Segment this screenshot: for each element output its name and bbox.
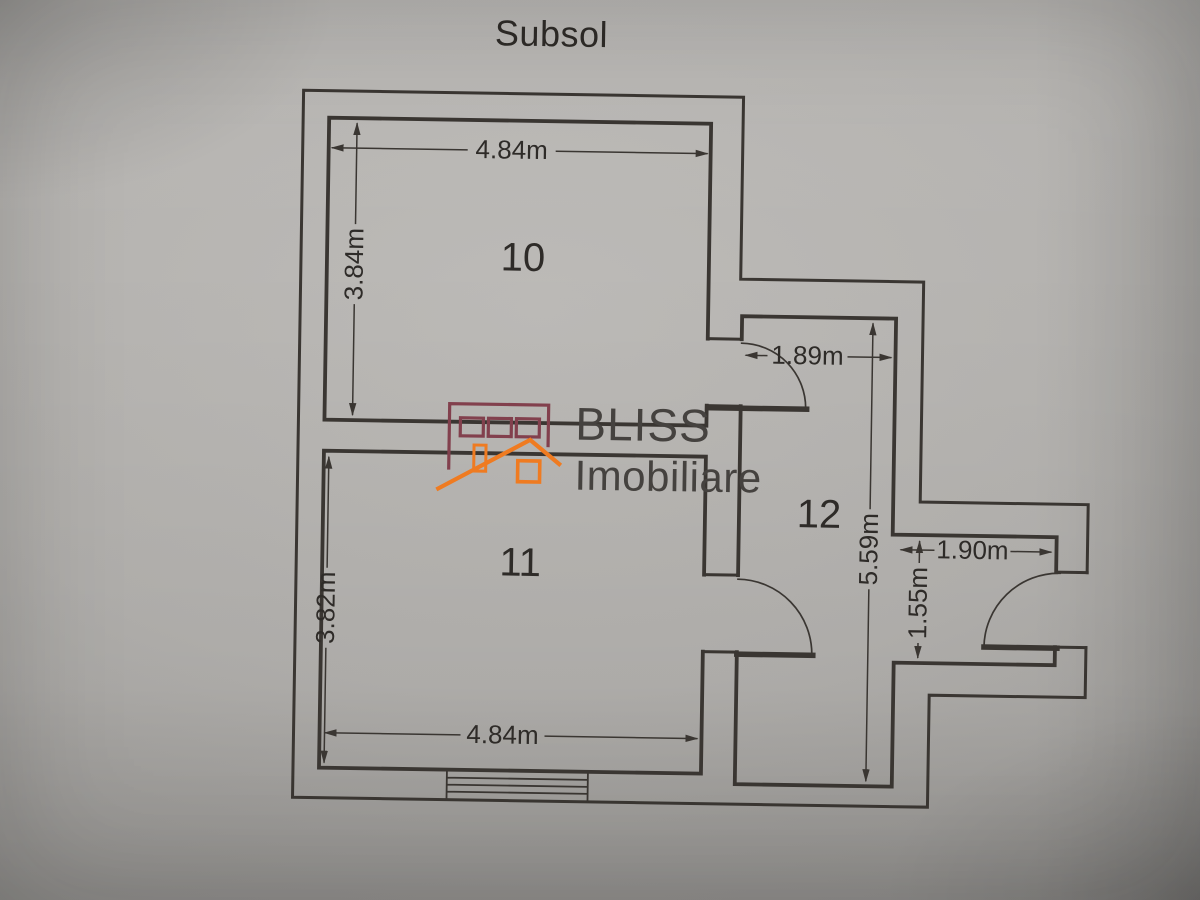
basement-window <box>446 770 587 802</box>
floorplan-drawing: Subsol 10 11 12 4.84m 3.84m 1.89m 5.59m … <box>0 0 1200 900</box>
dim-room11-width: 4.84m <box>466 719 539 750</box>
dim-hall-height: 5.59m <box>853 513 884 586</box>
dim-alcove-width: 1.90m <box>936 534 1009 565</box>
logo-text-group: BLISS Imobiliare <box>574 398 763 502</box>
dim-line-room10-height-bottom <box>353 304 355 415</box>
door-leaf-room11 <box>737 654 813 655</box>
dim-line-room10-width-left <box>332 148 468 150</box>
hallway-inner-wall <box>735 316 1060 789</box>
door-leaf-room10 <box>708 408 807 410</box>
door-arc-room11 <box>737 579 813 655</box>
dim-line-room11-width-left <box>325 733 461 735</box>
room-label-10: 10 <box>500 235 545 280</box>
dim-room10-width: 4.84m <box>475 134 548 165</box>
door-arc-entrance <box>984 572 1060 648</box>
dim-line-room10-width-right <box>556 151 708 153</box>
logo-tagline-text: Imobiliare <box>574 452 762 502</box>
dim-line-room10-height-top <box>356 123 358 224</box>
dim-line-hall-height-top <box>870 323 873 509</box>
watermark-logo: BLISS Imobiliare <box>436 395 763 501</box>
logo-brand-text: BLISS <box>575 398 711 452</box>
dim-line-room11-height-bottom <box>324 648 326 763</box>
logo-roof-group <box>436 438 561 491</box>
dim-room10-height: 3.84m <box>338 228 369 301</box>
dim-line-hall-top-right <box>847 357 891 358</box>
dim-alcove-height: 1.55m <box>902 567 933 640</box>
dim-line-room11-width-right <box>544 736 697 738</box>
dim-line-alcove-width-right <box>1010 551 1051 552</box>
scanned-floorplan-photo: Subsol 10 11 12 4.84m 3.84m 1.89m 5.59m … <box>0 0 1200 900</box>
room-label-11: 11 <box>499 540 541 585</box>
plan-title: Subsol <box>495 12 609 55</box>
dim-line-hall-height-bottom <box>866 589 869 781</box>
logo-door-icon <box>517 461 539 482</box>
dim-line-room11-height-top <box>327 457 329 568</box>
door-leaf-entrance <box>984 647 1057 648</box>
dim-line-alcove-width-left <box>900 550 934 551</box>
room-label-12: 12 <box>796 492 841 537</box>
dim-room11-height: 3.82m <box>310 571 341 644</box>
dim-hall-top-width: 1.89m <box>771 340 844 371</box>
logo-roof-icon <box>436 438 561 491</box>
